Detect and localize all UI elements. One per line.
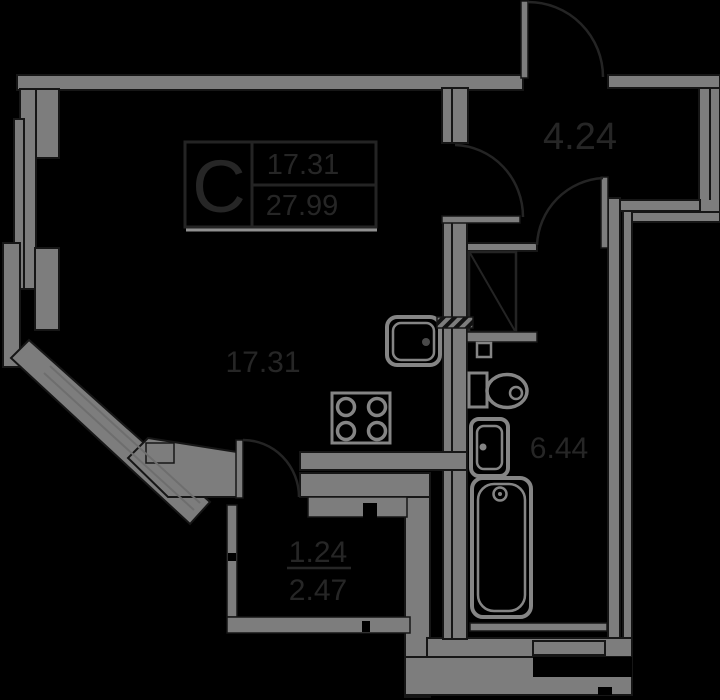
railing-segment [227,617,410,633]
wall-segment [443,221,467,639]
exterior-walls [3,75,720,697]
wall-segment [300,473,430,497]
living-room-door-swing-arc [455,145,523,217]
bathroom-door-swing-arc [537,178,603,245]
vent-hatch [437,317,473,328]
wall-segment [608,198,620,639]
wall-segment [625,212,720,222]
balcony-sill [308,497,407,517]
wall-segment [617,200,700,211]
balcony-reduced-area: 1.24 [289,536,347,569]
bathroom-area-label: 6.44 [530,432,588,465]
wall-segment [608,75,720,88]
bathroom-fixtures [467,252,537,617]
wall-segment [146,443,174,463]
bathroom-door-leaf [601,177,608,248]
balcony-door-leaf [236,440,243,498]
living-room-area-label: 17.31 [225,346,300,379]
entrance-door-swing-arc [528,2,603,77]
unit-total-area: 27.99 [266,190,339,222]
unit-stamp: C 17.31 27.99 [185,142,377,230]
window-glazing-line [50,366,200,503]
wall-segment [35,248,59,330]
hallway-area-label: 4.24 [543,116,617,158]
wall-segment [442,88,468,143]
living-room-door-leaf [442,216,520,223]
unit-type-letter: C [192,145,245,228]
bathroom-bottom-ledge [470,623,607,631]
wall-segment [623,211,632,639]
stove-symbol [332,393,390,443]
entrance-door-leaf [521,1,528,78]
washing-machine-symbol [467,252,537,357]
floor-plan: C 17.31 27.99 4.24 17.31 6.44 1.24 2.47 [0,0,720,700]
unit-living-area: 17.31 [267,149,340,181]
balcony-door-swing-arc [243,440,299,497]
bathtub-symbol [472,478,531,617]
balcony-area-label: 1.24 2.47 [287,536,351,607]
toilet-symbol [469,373,527,408]
wall-segment [300,452,467,470]
wall-segment [3,243,20,367]
kitchen-sink-symbol [387,317,440,365]
balcony-full-area: 2.47 [289,574,347,607]
wall-segment [467,243,537,251]
sink-symbol [471,419,508,476]
